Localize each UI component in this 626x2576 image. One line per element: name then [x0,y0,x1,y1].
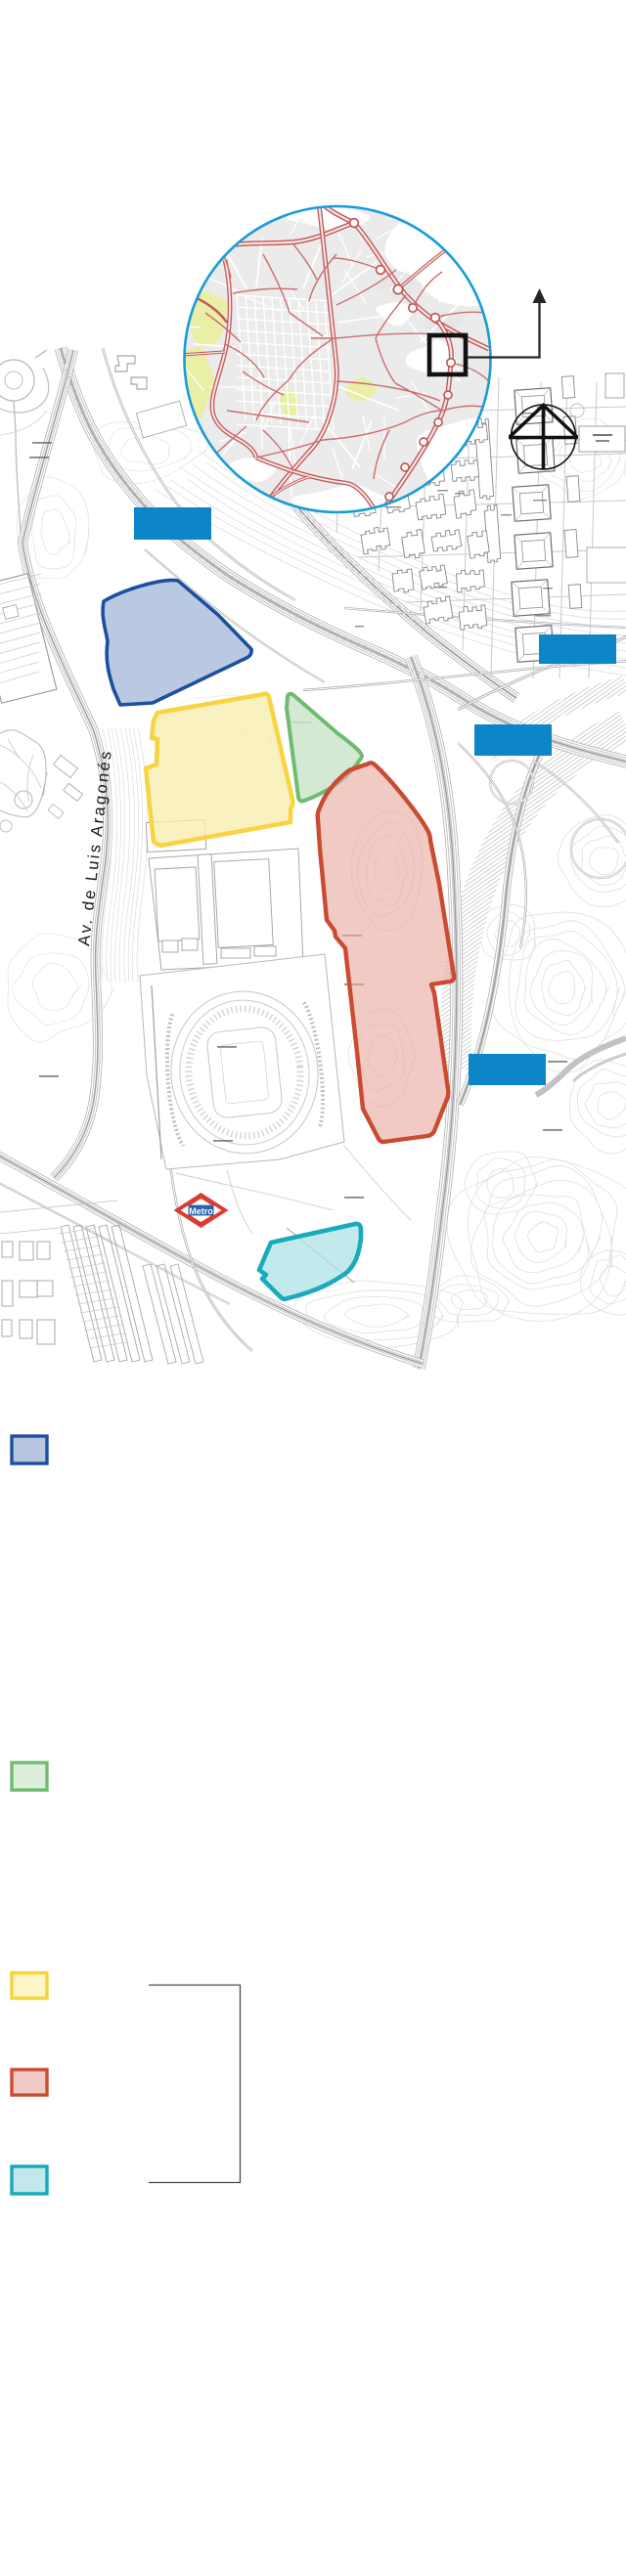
svg-text:Metro: Metro [189,1206,213,1216]
